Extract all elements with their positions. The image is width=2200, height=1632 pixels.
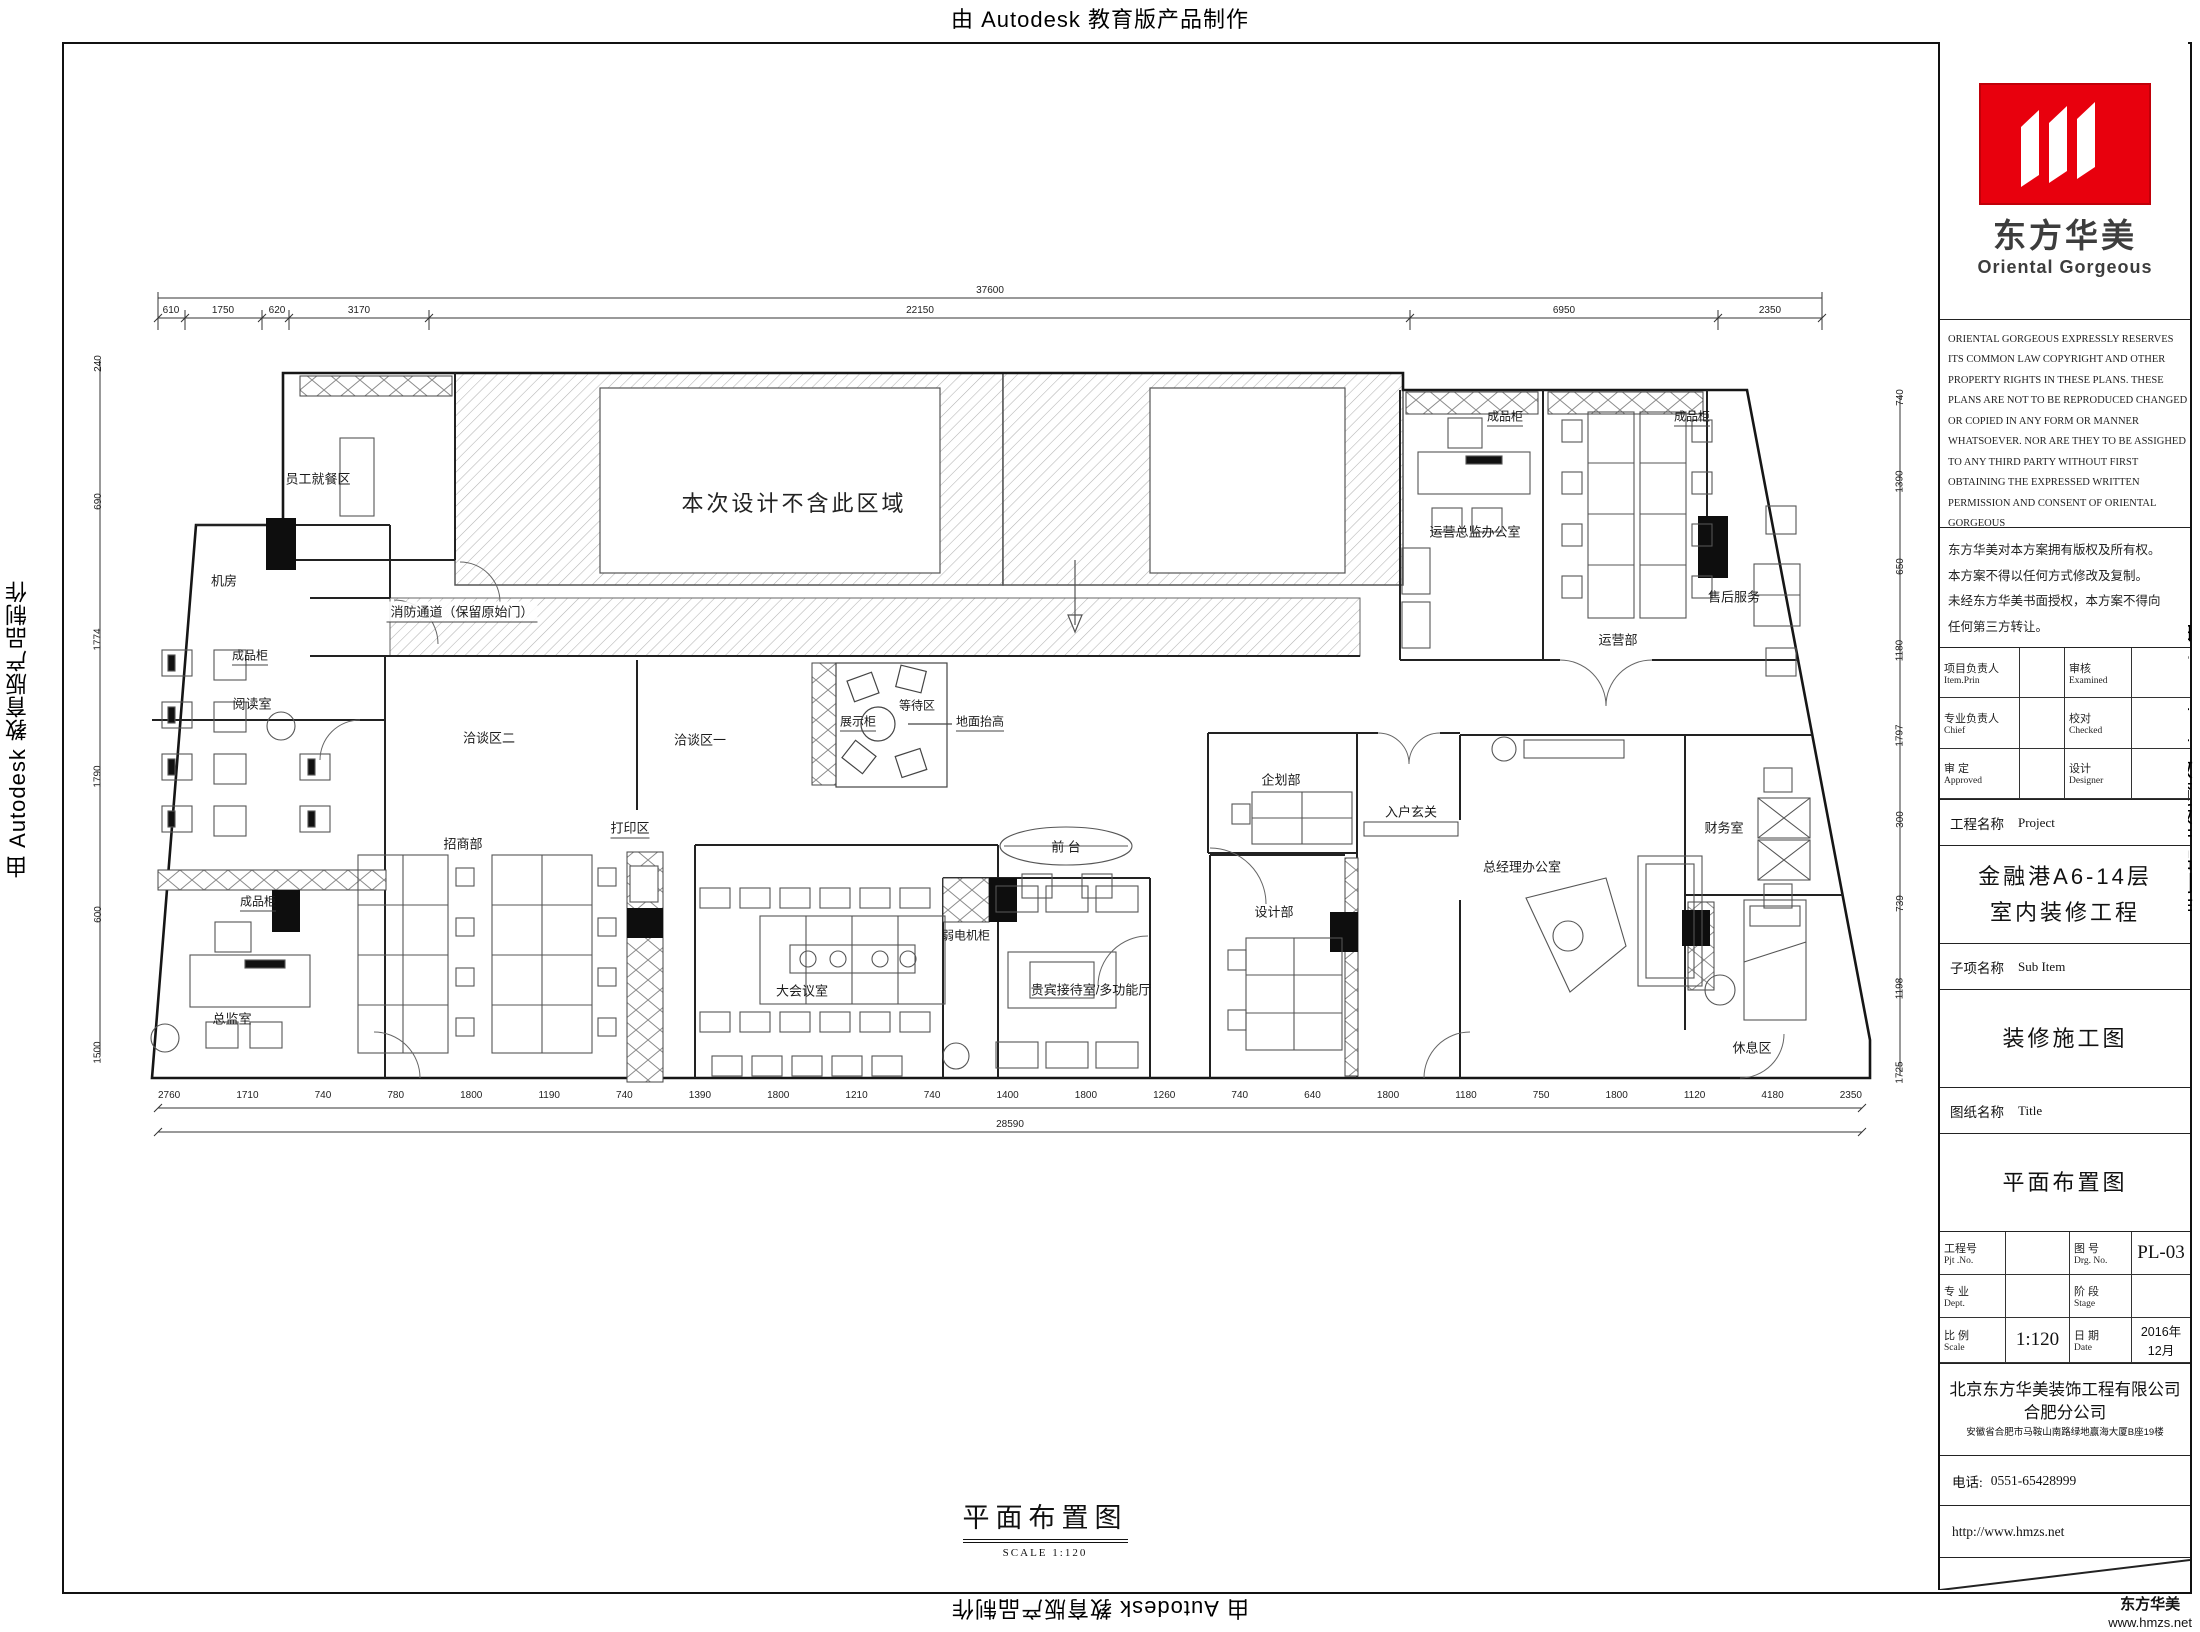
list-item: 1260: [1153, 1090, 1175, 1101]
footer-scale-note: SCALE 1:120: [1003, 1547, 1088, 1559]
cabinet-label: 成品柜: [232, 647, 268, 666]
copyright-english: ORIENTAL GORGEOUS EXPRESSLY RESERVESITS …: [1940, 320, 2190, 528]
list-item: 650: [1895, 558, 1906, 575]
sheet-label-row: 图纸名称Title: [1940, 1088, 2190, 1134]
list-item: 本方案不得以任何方式修改及复制。: [1948, 564, 2182, 590]
list-item: 1390: [1895, 471, 1906, 493]
list-item: 740: [924, 1090, 941, 1101]
list-item: 2760: [158, 1090, 180, 1101]
list-item: 4180: [1761, 1090, 1783, 1101]
cell-drg-no-value: PL-03: [2132, 1232, 2190, 1275]
room-label-machine-room: 机房: [211, 571, 237, 590]
cell-checked: 校对Checked: [2065, 698, 2132, 748]
room-label-reading-room: 阅读室: [232, 694, 271, 713]
room-label-gm-office: 总经理办公室: [1483, 857, 1561, 876]
list-item: 1180: [1455, 1090, 1477, 1101]
phone-cell: 电话:0551-65428999: [1940, 1456, 2190, 1506]
list-item: 未经东方华美书面授权，本方案不得向: [1948, 589, 2182, 615]
list-item: 740: [1895, 389, 1906, 406]
dim-top-total: 37600: [976, 285, 1004, 296]
company-name: 北京东方华美装饰工程有限公司: [1950, 1379, 2181, 1401]
list-item: TO ANY THIRD PARTY WITHOUT FIRST: [1948, 453, 2182, 473]
cell-date: 日 期Date: [2070, 1318, 2132, 1363]
website-cell: http://www.hmzs.net: [1940, 1506, 2190, 1558]
list-item: 690: [93, 493, 104, 510]
list-item: 1210: [845, 1090, 867, 1101]
dim-left-col: 240690177417906001500: [84, 358, 112, 1058]
dim-top-seg: 620: [269, 305, 286, 316]
list-item: PLANS ARE NOT TO BE REPRODUCED CHANGED: [1948, 391, 2182, 411]
floor-plan-canvas: [0, 0, 2200, 1632]
subitem-label-row: 子项名称Sub Item: [1940, 944, 2190, 990]
list-item: 750: [1533, 1090, 1550, 1101]
label-display-cabinet: 展示柜: [840, 713, 876, 732]
list-item: 1190: [538, 1090, 560, 1101]
room-label-print-area: 打印区: [610, 818, 649, 839]
subitem-value: 装修施工图: [1940, 990, 2190, 1088]
meta-table: 工程号Pjt .No. 图 号Drg. No. PL-03 专 业Dept. 阶…: [1940, 1232, 2190, 1364]
room-label-design-dept: 设计部: [1254, 902, 1293, 921]
list-item: OR COPIED IN ANY FORM OR MANNER: [1948, 412, 2182, 432]
cell-examined-value: [2132, 648, 2190, 698]
cell-designer-value: [2132, 749, 2190, 799]
dim-bottom-row: 2760171074078018001190740139018001210740…: [158, 1090, 1862, 1101]
cell-item-prin-value: [2020, 648, 2065, 698]
corner-cut-line: [1940, 1558, 2190, 1590]
list-item: 1180: [1894, 640, 1905, 662]
cell-approved-value: [2020, 749, 2065, 799]
list-item: 740: [616, 1090, 633, 1101]
room-label-finance: 财务室: [1704, 818, 1743, 837]
footer-drawing-title: 平面布置图: [963, 1496, 1128, 1543]
list-item: 2350: [1840, 1090, 1862, 1101]
cell-scale: 比 例Scale: [1940, 1318, 2006, 1363]
list-item: PERMISSION AND CONSENT OF ORIENTAL: [1948, 494, 2182, 514]
list-item: 600: [93, 906, 104, 923]
list-item: 1400: [996, 1090, 1018, 1101]
sheet-footer-title: 平面布置图 SCALE 1:120: [955, 1496, 1135, 1561]
list-item: PROPERTY RIGHTS IN THESE PLANS. THESE: [1948, 371, 2182, 391]
list-item: 1800: [460, 1090, 482, 1101]
logo-cell: 东方华美 Oriental Gorgeous: [1940, 42, 2190, 320]
room-label-planning-dept: 企划部: [1261, 770, 1300, 789]
cell-item-prin: 项目负责人Item.Prin: [1940, 648, 2020, 698]
cell-date-value: 2016年12月: [2132, 1318, 2190, 1363]
label-weak-current: 弱电机柜: [942, 927, 990, 944]
list-item: OBTAINING THE EXPRESSED WRITTEN: [1948, 473, 2182, 493]
cabinet-label: 成品柜: [240, 893, 276, 912]
sheet-value: 平面布置图: [1940, 1134, 2190, 1232]
dim-right-col: 74013906501180179730073911981725: [1886, 392, 1914, 1078]
list-item: 1800: [767, 1090, 789, 1101]
list-item: WHATSOEVER. NOR ARE THEY TO BE ASSIGHED: [1948, 432, 2182, 452]
logo-name-en: Oriental Gorgeous: [1977, 257, 2152, 278]
list-item: 1198: [1894, 977, 1905, 999]
list-item: 240: [93, 355, 104, 372]
cell-designer: 设计Designer: [2065, 749, 2132, 799]
list-item: 780: [387, 1090, 404, 1101]
list-item: 任何第三方转让。: [1948, 615, 2182, 641]
dim-top-seg: 610: [163, 305, 180, 316]
cell-examined: 审核Examined: [2065, 648, 2132, 698]
cabinet-label: 成品柜: [1487, 408, 1523, 427]
project-name: 金融港A6-14层 室内装修工程: [1940, 846, 2190, 944]
list-item: 1710: [236, 1090, 258, 1101]
logo-name-cn: 东方华美: [1993, 209, 2137, 257]
cell-chief: 专业负责人Chief: [1940, 698, 2020, 748]
list-item: 1500: [93, 1041, 104, 1063]
list-item: 739: [1895, 895, 1906, 912]
cell-dept: 专 业Dept.: [1940, 1275, 2006, 1318]
cell-drg-no: 图 号Drg. No.: [2070, 1232, 2132, 1275]
cabinet-label: 成品柜: [1674, 408, 1710, 427]
list-item: 1800: [1606, 1090, 1628, 1101]
list-item: 1725: [1895, 1061, 1906, 1083]
company-branch: 合肥分公司: [2024, 1402, 2107, 1424]
dim-top-seg: 6950: [1553, 305, 1575, 316]
list-item: ORIENTAL GORGEOUS EXPRESSLY RESERVES: [1948, 330, 2182, 350]
dim-top-seg: 1750: [212, 305, 234, 316]
cell-checked-value: [2132, 698, 2190, 748]
cell-pjt-no-value: [2006, 1232, 2070, 1275]
room-label-vip-room: 贵宾接待室/多功能厅: [1031, 980, 1152, 999]
company-address: 安徽省合肥市马鞍山南路绿地赢海大厦B座19楼: [1966, 1427, 2163, 1440]
room-label-director-office: 总监室: [212, 1009, 251, 1028]
label-waiting-area: 等待区: [899, 697, 935, 714]
room-label-talk-area-1: 洽谈区一: [674, 730, 726, 749]
list-item: 300: [1895, 811, 1906, 828]
room-label-talk-area-2: 洽谈区二: [463, 728, 515, 747]
cell-dept-value: [2006, 1275, 2070, 1318]
list-item: 1800: [1075, 1090, 1097, 1101]
list-item: 东方华美对本方案拥有版权及所有权。: [1948, 538, 2182, 564]
cell-stage: 阶 段Stage: [2070, 1275, 2132, 1318]
list-item: 1790: [93, 766, 104, 788]
corner-cut-cell: [1940, 1558, 2190, 1590]
cell-pjt-no: 工程号Pjt .No.: [1940, 1232, 2006, 1275]
list-item: 740: [1231, 1090, 1248, 1101]
dim-bottom-total: 28590: [996, 1119, 1024, 1130]
project-label-row: 工程名称Project: [1940, 800, 2190, 846]
room-label-ops-dept: 运营部: [1598, 630, 1637, 649]
room-label-after-sales: 售后服务: [1708, 587, 1760, 606]
dim-top-seg: 22150: [906, 305, 934, 316]
room-label-rest-area: 休息区: [1732, 1038, 1771, 1057]
cell-chief-value: [2020, 698, 2065, 748]
company-cell: 北京东方华美装饰工程有限公司 合肥分公司 安徽省合肥市马鞍山南路绿地赢海大厦B座…: [1940, 1364, 2190, 1456]
copyright-chinese: 东方华美对本方案拥有版权及所有权。本方案不得以任何方式修改及复制。未经东方华美书…: [1940, 528, 2190, 648]
note-fire-corridor: 消防通道（保留原始门）: [386, 602, 537, 623]
personnel-table: 项目负责人Item.Prin 审核Examined 专业负责人Chief 校对C…: [1940, 648, 2190, 800]
cell-stage-value: [2132, 1275, 2190, 1318]
dim-top-seg: 2350: [1759, 305, 1781, 316]
list-item: 1120: [1684, 1090, 1706, 1101]
list-item: 1800: [1377, 1090, 1399, 1101]
cad-sheet: { "watermark": { "text": "由 Autodesk 教育版…: [0, 0, 2200, 1632]
room-label-ops-director: 运营总监办公室: [1429, 522, 1520, 541]
room-label-meeting-room: 大会议室: [776, 981, 828, 1000]
cell-scale-value: 1:120: [2006, 1318, 2070, 1363]
room-label-reception: 前 台: [1051, 837, 1081, 856]
cell-approved: 审 定Approved: [1940, 749, 2020, 799]
list-item: 640: [1304, 1090, 1321, 1101]
dim-top-seg: 3170: [348, 305, 370, 316]
room-label-merchants-dept: 招商部: [443, 834, 482, 853]
label-floor-raised: 地面抬高: [956, 713, 1004, 732]
list-item: 1774: [93, 628, 104, 650]
room-label-entry-hall: 入户玄关: [1385, 802, 1437, 821]
list-item: 1390: [689, 1090, 711, 1101]
note-excluded-area: 本次设计不含此区域: [681, 486, 906, 518]
list-item: 740: [315, 1090, 332, 1101]
list-item: 1797: [1895, 724, 1906, 746]
title-block: 东方华美 Oriental Gorgeous ORIENTAL GORGEOUS…: [1938, 42, 2188, 1590]
list-item: ITS COMMON LAW COPYRIGHT AND OTHER: [1948, 350, 2182, 370]
list-item: GORGEOUS: [1948, 514, 2182, 528]
room-label-staff-dining: 员工就餐区: [285, 469, 350, 488]
oriental-gorgeous-logo-icon: [1979, 83, 2151, 205]
